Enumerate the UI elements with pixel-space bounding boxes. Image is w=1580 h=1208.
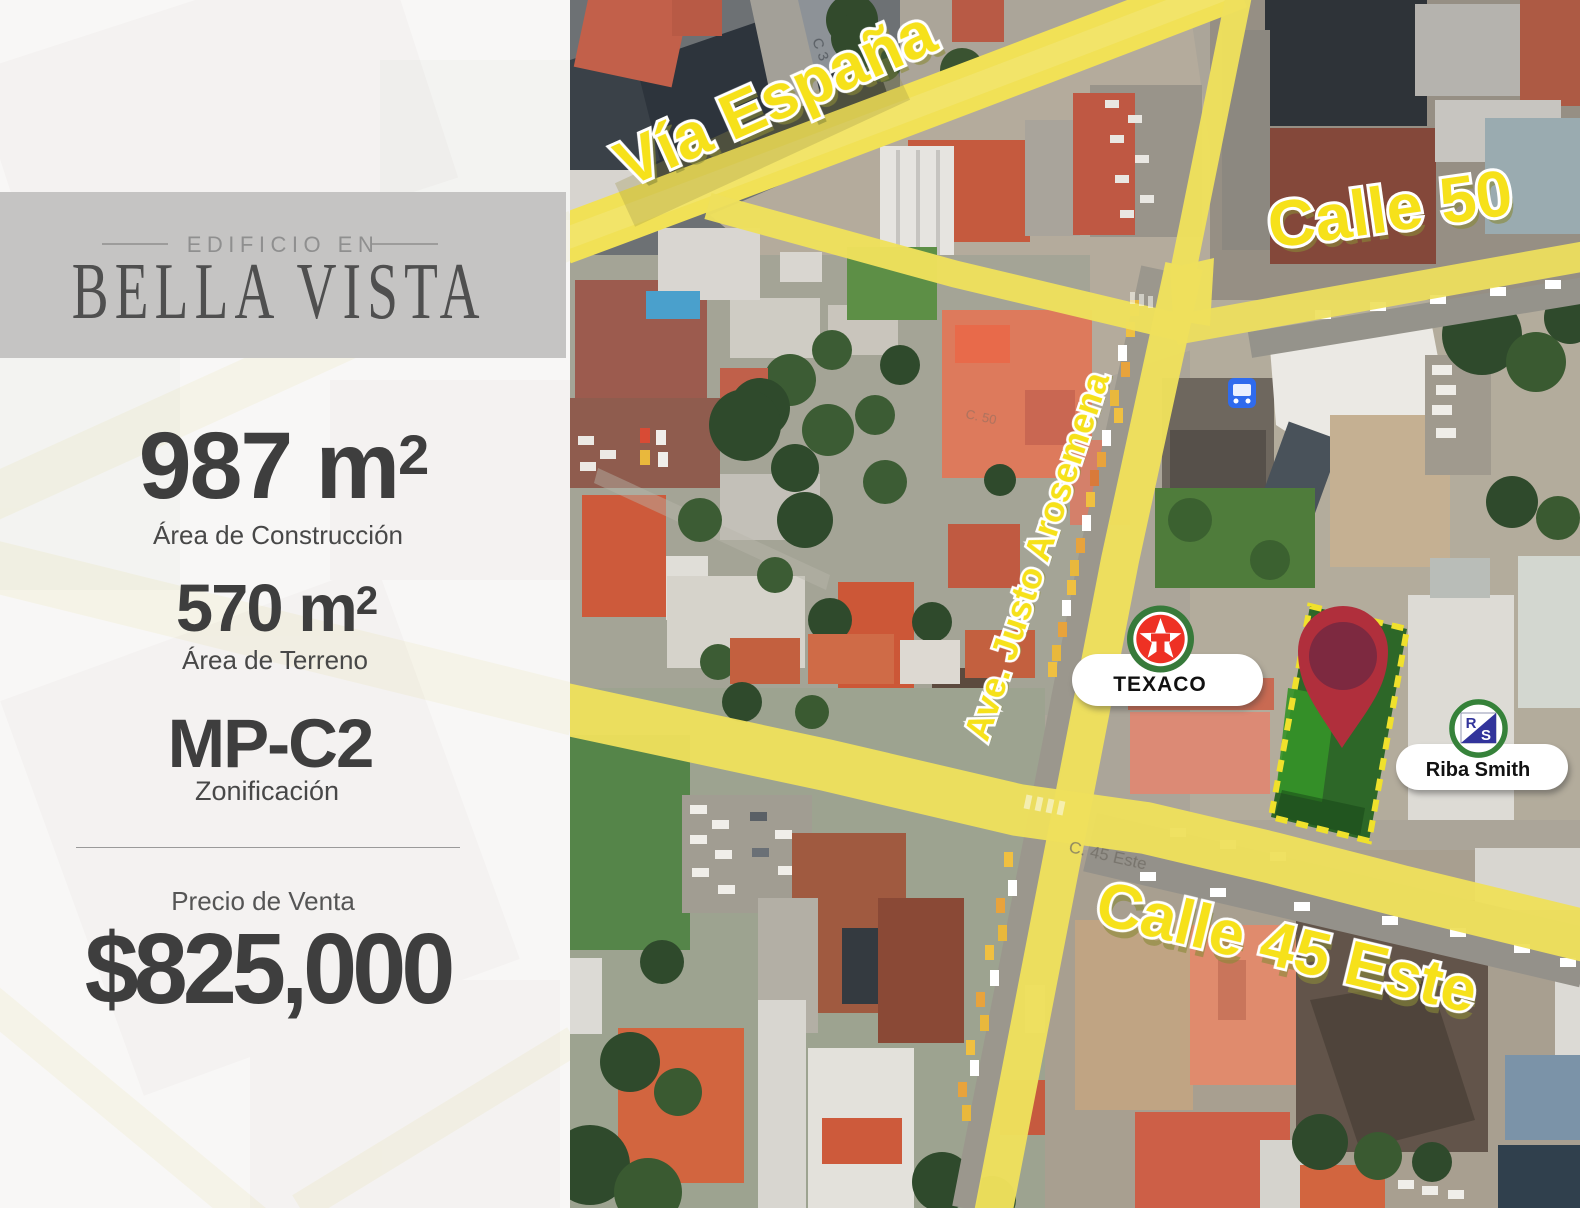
svg-text:R: R [1466,715,1477,732]
svg-text:TEXACO: TEXACO [1113,673,1207,696]
svg-text:S: S [1481,727,1491,744]
svg-text:Riba Smith: Riba Smith [1426,759,1530,781]
